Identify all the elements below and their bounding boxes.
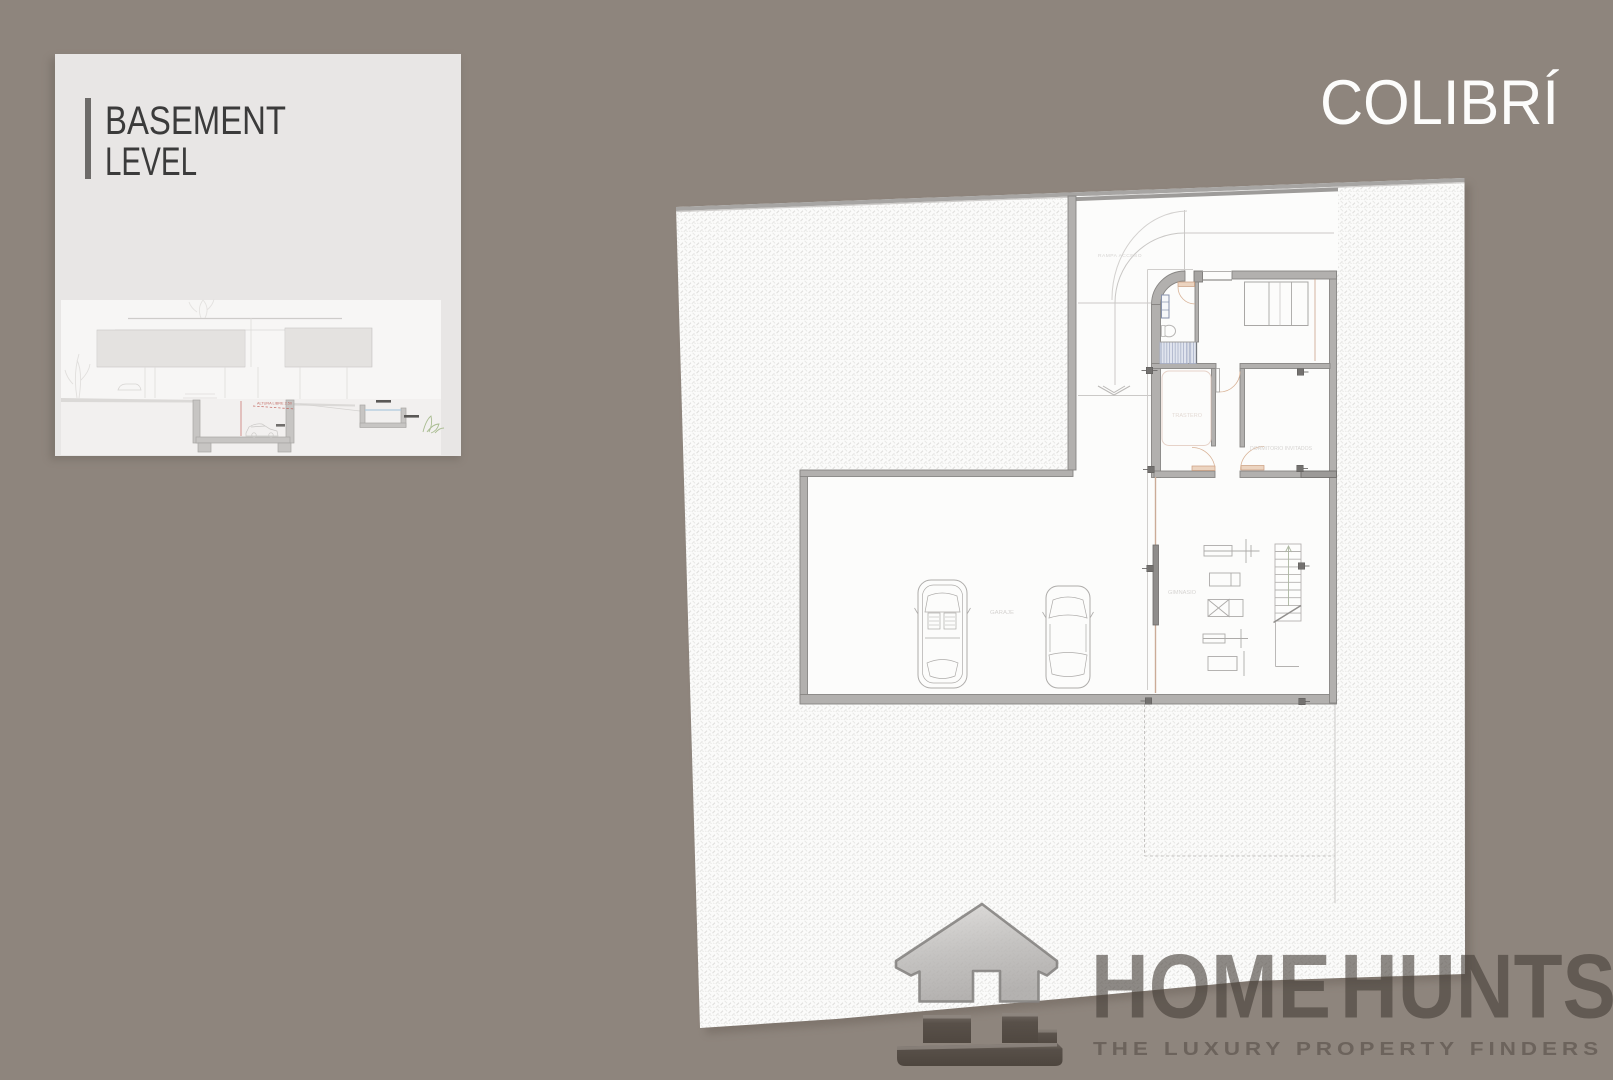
svg-text:HOME: HOME [1091, 937, 1331, 1038]
svg-text:HUNTS: HUNTS [1340, 937, 1613, 1038]
svg-text:COLIBRÍ: COLIBRÍ [1320, 68, 1559, 138]
svg-text:THE LUXURY PROPERTY FINDERS: THE LUXURY PROPERTY FINDERS [1093, 1038, 1603, 1059]
